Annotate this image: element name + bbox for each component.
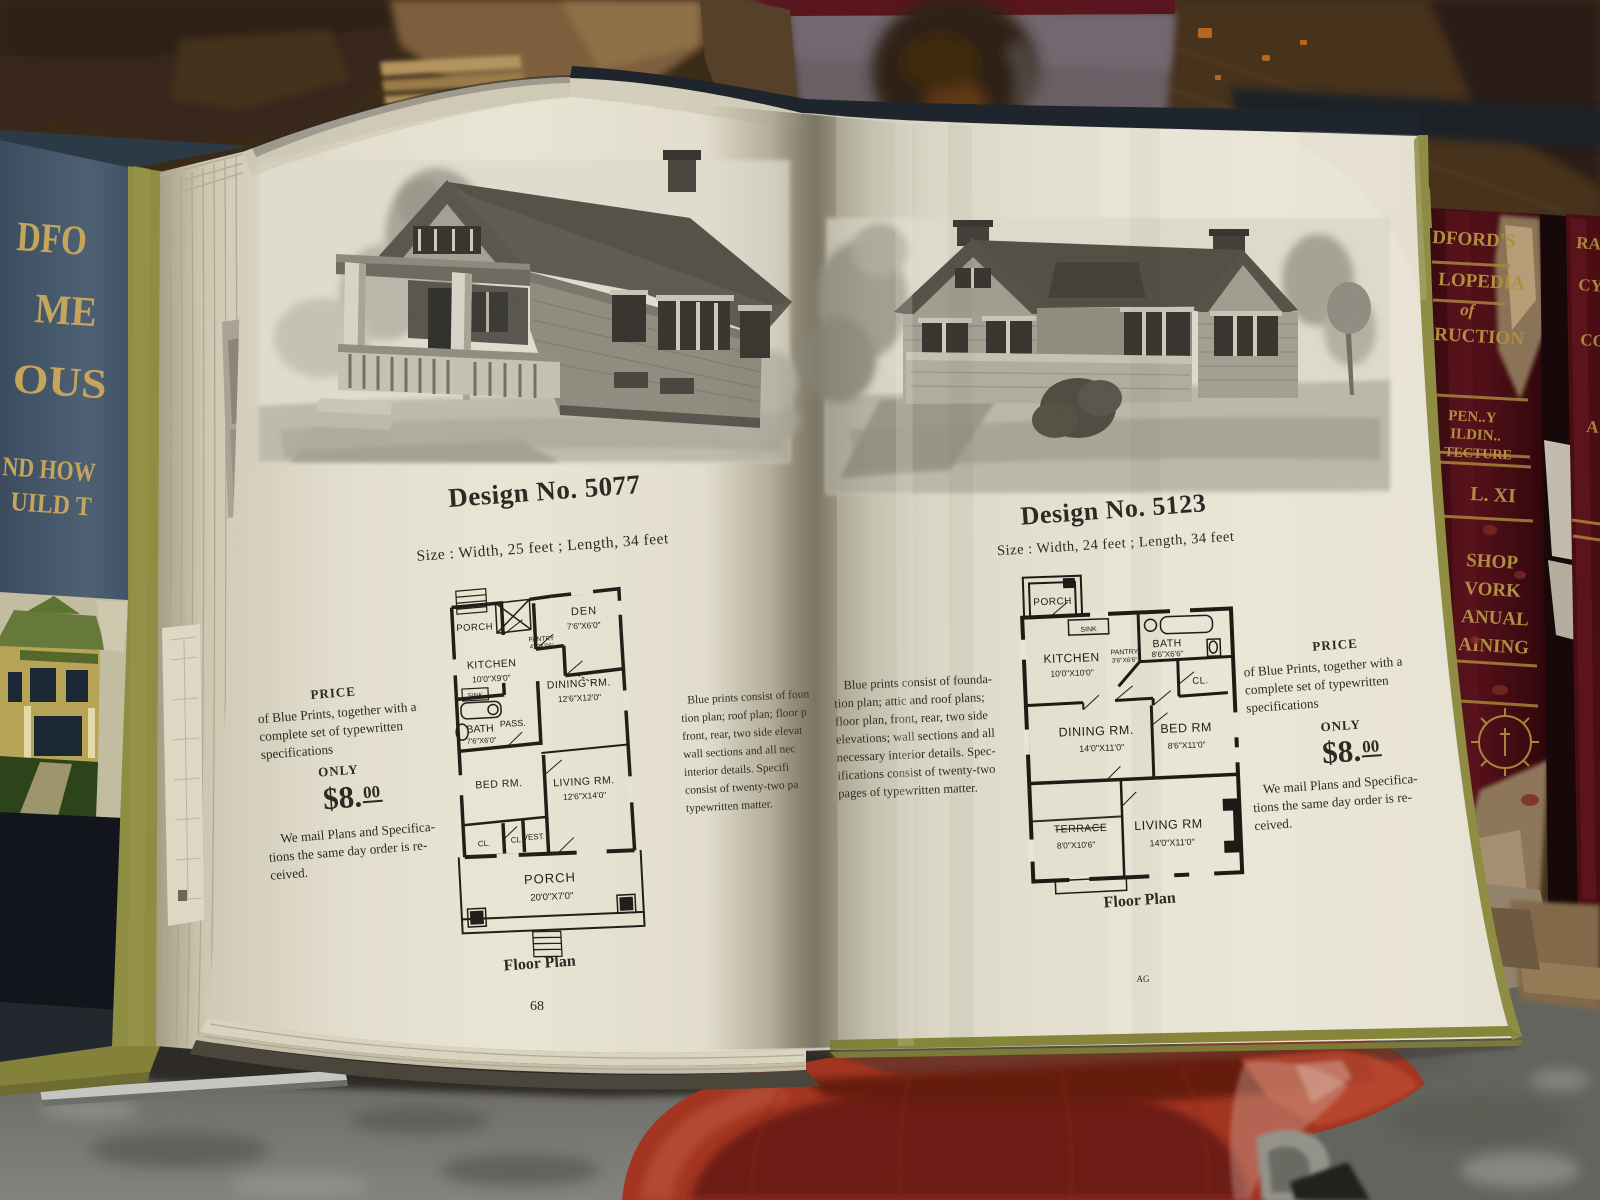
- svg-text:PASS.: PASS.: [500, 718, 526, 729]
- svg-text:CL: CL: [511, 835, 522, 845]
- svg-text:7'6"X6'0": 7'6"X6'0": [567, 620, 601, 632]
- svg-text:AINING: AINING: [1458, 634, 1530, 659]
- svg-text:8'0"X10'6": 8'0"X10'6": [1057, 839, 1096, 850]
- svg-text:ANUAL: ANUAL: [1461, 606, 1530, 631]
- svg-text:00: 00: [1362, 736, 1380, 756]
- svg-text:RA: RA: [1576, 233, 1600, 254]
- svg-text:CO: CO: [1580, 330, 1600, 351]
- svg-text:68: 68: [530, 999, 544, 1014]
- svg-text:OUS: OUS: [11, 356, 108, 408]
- svg-text:VORK: VORK: [1464, 578, 1522, 602]
- svg-text:PORCH: PORCH: [456, 621, 493, 634]
- svg-text:ILDIN..: ILDIN..: [1450, 426, 1502, 445]
- svg-text:PORCH: PORCH: [1033, 596, 1072, 608]
- svg-text:CL.: CL.: [478, 839, 491, 849]
- svg-text:ceived.: ceived.: [1254, 816, 1293, 834]
- svg-text:CL.: CL.: [1192, 675, 1209, 687]
- svg-text:$8.: $8.: [322, 778, 363, 816]
- svg-text:$8.: $8.: [1321, 733, 1362, 771]
- svg-text:DFO: DFO: [15, 214, 88, 265]
- svg-text:VEST.: VEST.: [522, 832, 545, 842]
- svg-text:BED RM.: BED RM.: [475, 777, 523, 791]
- svg-text:ONLY: ONLY: [1320, 717, 1361, 735]
- svg-text:L. XI: L. XI: [1470, 483, 1517, 507]
- svg-text:DINING RM.: DINING RM.: [1058, 723, 1134, 740]
- svg-text:PEN..Y: PEN..Y: [1448, 408, 1497, 427]
- svg-text:10'0"X10'0": 10'0"X10'0": [1050, 667, 1094, 679]
- svg-text:BATH: BATH: [466, 722, 494, 735]
- svg-text:00: 00: [362, 782, 380, 802]
- svg-text:PRICE: PRICE: [1312, 636, 1358, 654]
- svg-text:CY: CY: [1578, 275, 1600, 296]
- svg-text:ceived.: ceived.: [270, 865, 309, 883]
- svg-text:10'0"X9'0": 10'0"X9'0": [472, 673, 511, 685]
- svg-text:SINK: SINK: [1080, 626, 1097, 634]
- svg-text:KITCHEN: KITCHEN: [1043, 650, 1100, 666]
- svg-text:4'6"X3'6": 4'6"X3'6": [530, 643, 554, 650]
- svg-text:SINK: SINK: [468, 692, 484, 700]
- svg-text:PORCH: PORCH: [524, 869, 577, 887]
- svg-text:PANTRY: PANTRY: [528, 635, 555, 643]
- svg-text:8'6"X11'0": 8'6"X11'0": [1168, 739, 1206, 750]
- svg-text:20'0"X7'0": 20'0"X7'0": [530, 891, 574, 904]
- svg-text:BED RM: BED RM: [1160, 720, 1212, 736]
- svg-text:7'6"X6'0": 7'6"X6'0": [466, 735, 497, 746]
- svg-text:DEN: DEN: [571, 605, 598, 618]
- svg-text:14'0"X11'0": 14'0"X11'0": [1079, 742, 1125, 754]
- svg-text:SHOP: SHOP: [1466, 550, 1519, 574]
- svg-text:ME: ME: [33, 286, 98, 336]
- svg-text:ONLY: ONLY: [318, 762, 359, 780]
- svg-text:DFORD'S: DFORD'S: [1432, 227, 1516, 252]
- svg-text:A: A: [1586, 417, 1600, 437]
- svg-text:UILD T: UILD T: [10, 486, 93, 522]
